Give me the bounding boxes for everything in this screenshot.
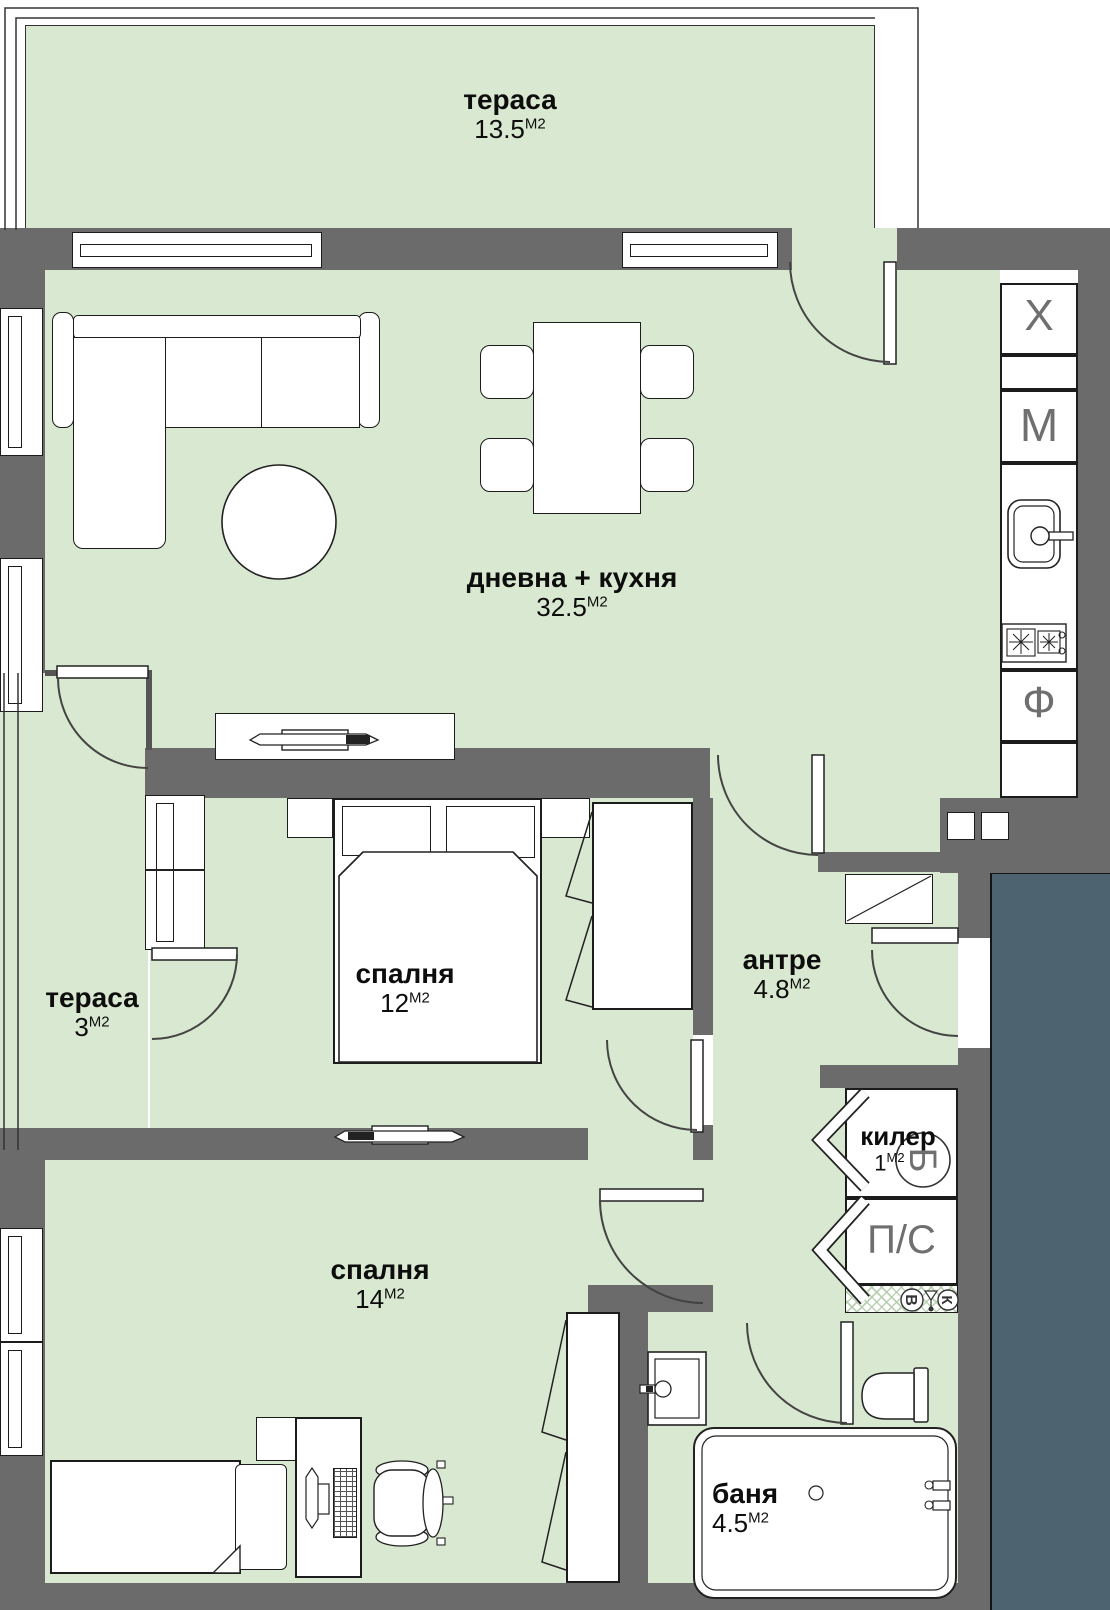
adjacent-unit-area	[990, 872, 1110, 1610]
bed-1-pillow-left	[342, 806, 431, 856]
window-bedroom1-terrace	[145, 795, 205, 950]
nightstand-left	[287, 798, 333, 838]
kitchen-cabinet-end	[1000, 742, 1078, 798]
room-area: 12М2	[355, 989, 454, 1018]
window-terrace-2-pane	[630, 244, 768, 257]
keyboard	[333, 1468, 357, 1538]
room-area: 4.8М2	[743, 975, 822, 1004]
wall-under-kitchen	[818, 852, 1110, 872]
room-area: 1М2	[860, 1151, 936, 1176]
nightstand-right	[541, 798, 590, 838]
room-area: 14М2	[330, 1285, 429, 1314]
tv-cabinet	[215, 713, 455, 760]
dining-chair-4	[640, 438, 694, 492]
kitchen-cabinet-small	[1000, 355, 1078, 390]
wall-mid-band	[0, 1128, 588, 1160]
cabinet-letter-oven: Ф	[1000, 678, 1078, 728]
wall-bedroom1-right	[693, 798, 713, 1035]
room-name: спалня	[355, 958, 454, 989]
room-label-bedroom-2: спалня 14М2	[330, 1254, 429, 1314]
room-name: тераса	[463, 84, 556, 115]
wardrobe-bedroom2	[566, 1312, 620, 1583]
terrace-top-floor	[25, 25, 875, 230]
bathroom-floor	[648, 1310, 958, 1583]
window-living-left-2-pane	[8, 566, 22, 704]
sofa-seat-2	[261, 337, 360, 428]
room-label-bedroom-1: спалня 12М2	[355, 958, 454, 1018]
hallway-cabinet	[845, 874, 933, 924]
wall-bottom	[45, 1583, 960, 1610]
dining-chair-2	[480, 438, 534, 492]
wall-terrace-left-top-stub	[146, 670, 152, 750]
sofa-left-arm	[52, 312, 74, 428]
room-label-hallway: антре 4.8М2	[743, 944, 822, 1004]
closet-corridor-floor	[713, 1065, 845, 1310]
wall-right-upper	[1078, 228, 1110, 873]
wall-bedroom1-right-stub	[693, 1125, 713, 1160]
room-label-terrace-left: тераса 3М2	[45, 982, 138, 1042]
window-bedroom1-terrace-pane	[156, 803, 174, 942]
room-area: 13.5М2	[463, 115, 556, 144]
room-name: дневна + кухня	[467, 562, 678, 593]
bed-2-frame	[50, 1460, 241, 1574]
wardrobe-bedroom1	[592, 802, 693, 1010]
room-name: баня	[712, 1478, 778, 1509]
bed-1-pillow-right	[446, 806, 535, 858]
desk-return	[256, 1417, 297, 1461]
room-name: килер	[860, 1122, 936, 1151]
terrace-left-floor	[0, 673, 148, 1150]
room-name: антре	[743, 944, 822, 975]
room-area: 32.5М2	[467, 593, 678, 622]
wall-bedroom2-bathroom	[620, 1310, 648, 1583]
wall-terrace-left-corner-stub	[45, 670, 57, 676]
shaft-box-2	[981, 812, 1009, 840]
floor-plan: Б В К	[0, 0, 1110, 1610]
terrace-door-opening	[792, 228, 897, 270]
shaft-box-1	[947, 812, 975, 840]
room-area: 3М2	[45, 1013, 138, 1042]
entry-door-opening	[958, 938, 990, 1048]
window-terrace-1-pane	[80, 244, 312, 257]
dining-chair-1	[480, 345, 534, 399]
dining-table	[533, 322, 641, 514]
room-label-closet: килер 1М2	[860, 1122, 936, 1176]
room-name: тераса	[45, 982, 138, 1013]
room-label-bathroom: баня 4.5М2	[712, 1478, 778, 1538]
wall-corridor-bathroom	[588, 1285, 713, 1312]
washer-dryer-label: П/С	[845, 1218, 958, 1263]
room-area: 4.5М2	[712, 1509, 778, 1538]
sofa-chaise	[73, 337, 166, 549]
room-name: спалня	[330, 1254, 429, 1285]
sofa-back	[73, 315, 361, 339]
window-bedroom2-left-2-pane	[8, 1350, 22, 1448]
window-living-left-1-pane	[8, 316, 22, 448]
room-label-terrace-top: тераса 13.5М2	[463, 84, 556, 144]
room-label-living-kitchen: дневна + кухня 32.5М2	[467, 562, 678, 622]
cabinet-letter-dishwasher: М	[1000, 398, 1078, 452]
sofa-right-arm	[358, 312, 380, 428]
window-bedroom2-left-1-pane	[8, 1236, 22, 1334]
sofa-seat-1	[165, 337, 263, 428]
window-bedroom1-terrace-divider	[145, 869, 205, 871]
bed-2-pillow	[235, 1464, 287, 1570]
dining-chair-3	[640, 345, 694, 399]
cabinet-letter-fridge: Х	[1000, 291, 1078, 341]
plumbing-strip	[845, 1285, 958, 1313]
kitchen-cabinet-counter	[1000, 463, 1078, 670]
wall-closet-top	[820, 1065, 958, 1088]
